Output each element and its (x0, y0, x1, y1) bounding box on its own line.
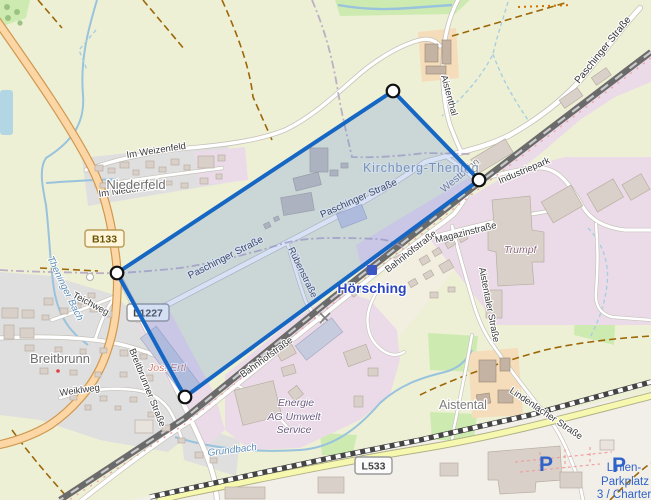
poi-label-trumpf: Trumpf (504, 244, 538, 256)
place-label-aistental: Aistental (439, 398, 487, 412)
poi-circle-icon (87, 274, 94, 281)
vertex-handle-north[interactable] (387, 85, 400, 98)
parking-icon-1: P (539, 453, 553, 476)
railway-station-icon (367, 265, 377, 275)
vertex-handle-west[interactable] (111, 267, 124, 280)
svg-text:AG Umwelt: AG Umwelt (266, 411, 321, 423)
traffic-signal-icon (56, 369, 60, 373)
road-shield-l533: L533 (355, 457, 392, 474)
vertex-handle-east[interactable] (473, 174, 486, 187)
road-shield-b133: B133 (85, 230, 124, 247)
svg-text:3 / Charter-: 3 / Charter- (597, 489, 651, 500)
svg-text:L533: L533 (362, 461, 386, 473)
svg-text:Linien-: Linien- (607, 462, 642, 474)
map-viewport[interactable]: Im Weizenfeld Im Niederfeld Teichweg Wei… (0, 0, 651, 500)
place-label-hoersching: Hörsching (337, 280, 406, 296)
vertex-handle-south[interactable] (179, 391, 192, 404)
svg-text:Energie: Energie (278, 397, 314, 409)
svg-text:Parkplatz: Parkplatz (601, 476, 649, 488)
svg-text:Service: Service (276, 424, 311, 436)
svg-text:B133: B133 (92, 234, 117, 246)
map-canvas[interactable]: Im Weizenfeld Im Niederfeld Teichweg Wei… (0, 0, 651, 500)
place-label-niederfeld: Niederfeld (106, 177, 165, 192)
place-label-breitbrunn: Breitbrunn (30, 351, 90, 366)
